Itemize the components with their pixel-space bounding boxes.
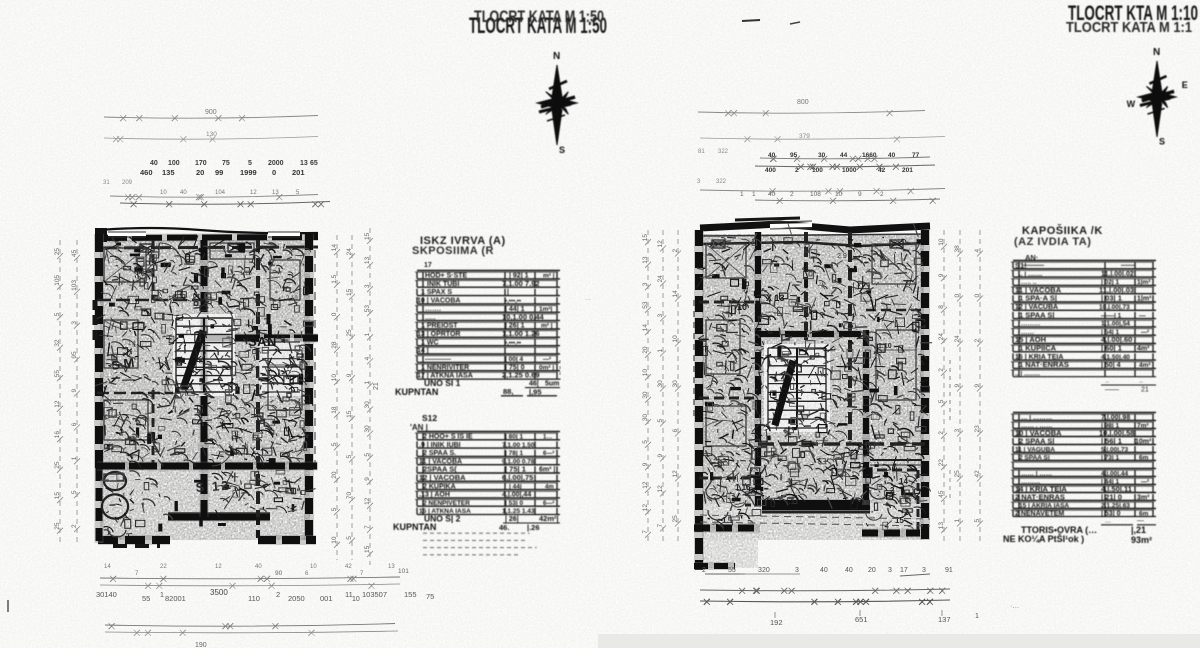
svg-text:2,1.25 0.69: 2,1.25 0.69 xyxy=(502,371,540,380)
svg-text:15: 15 xyxy=(364,232,371,240)
svg-text:10: 10 xyxy=(737,302,747,312)
svg-text:'AN |: 'AN | xyxy=(410,423,428,432)
svg-text:9: 9 xyxy=(364,477,371,481)
svg-text:K: K xyxy=(196,355,202,364)
svg-text:70: 70 xyxy=(346,491,353,499)
svg-text:2: 2 xyxy=(880,191,884,198)
svg-text:95: 95 xyxy=(790,152,798,159)
svg-text:13: 13 xyxy=(364,256,371,264)
svg-text:1660: 1660 xyxy=(862,152,877,159)
svg-text:2: 2 xyxy=(795,167,799,174)
svg-text:25: 25 xyxy=(54,248,61,256)
svg-text:93m²: 93m² xyxy=(1131,535,1152,545)
svg-text:..: .. xyxy=(1105,378,1109,385)
svg-text:3: 3 xyxy=(71,321,78,325)
svg-text:7: 7 xyxy=(364,525,371,529)
svg-text:42: 42 xyxy=(878,167,886,174)
svg-text:30: 30 xyxy=(818,152,826,159)
svg-text:TLOCRT KATA M 1:1: TLOCRT KATA M 1:1 xyxy=(1066,19,1192,36)
svg-text:24: 24 xyxy=(938,333,945,341)
svg-text:40: 40 xyxy=(768,152,776,159)
svg-text:S 12: S 12 xyxy=(195,478,231,495)
svg-text:15: 15 xyxy=(364,545,371,553)
svg-text:155: 155 xyxy=(404,590,417,599)
svg-text:13: 13 xyxy=(642,256,649,264)
svg-text:1: 1 xyxy=(975,613,979,620)
svg-text:5: 5 xyxy=(346,454,353,458)
svg-text:...: ... xyxy=(1105,518,1111,525)
svg-text:2.: 2. xyxy=(904,508,911,517)
svg-text:3: 3 xyxy=(657,314,664,318)
svg-text:55: 55 xyxy=(54,370,61,378)
svg-text:99: 99 xyxy=(215,168,223,177)
svg-text:15: 15 xyxy=(346,288,353,296)
svg-text:12: 12 xyxy=(54,400,61,408)
svg-text:170: 170 xyxy=(195,160,207,167)
svg-text:2: 2 xyxy=(790,191,794,198)
svg-text:13: 13 xyxy=(300,160,308,167)
svg-text:2: 2 xyxy=(938,368,945,372)
svg-text:25: 25 xyxy=(672,515,679,523)
svg-text:42: 42 xyxy=(345,564,352,570)
svg-text:S: S xyxy=(559,145,565,155)
svg-text:——: —— xyxy=(1105,387,1119,394)
svg-text:10: 10 xyxy=(835,191,843,198)
svg-text:5: 5 xyxy=(364,453,371,457)
svg-text:14: 14 xyxy=(672,290,679,298)
svg-text:900: 900 xyxy=(205,109,217,116)
svg-text:9: 9 xyxy=(346,373,353,377)
svg-text:E: E xyxy=(1182,80,1188,90)
svg-text:44: 44 xyxy=(840,152,848,159)
svg-text:22: 22 xyxy=(160,564,167,570)
svg-text:75: 75 xyxy=(426,592,434,601)
svg-text:20: 20 xyxy=(331,471,338,479)
svg-text:201: 201 xyxy=(902,167,913,174)
svg-text:5: 5 xyxy=(331,507,338,511)
svg-text:3500: 3500 xyxy=(210,588,228,597)
svg-text:5: 5 xyxy=(974,519,981,523)
svg-text:1.15: 1.15 xyxy=(240,271,252,277)
svg-text:2: 2 xyxy=(974,339,981,343)
svg-text:5: 5 xyxy=(54,312,61,316)
svg-text:1.1: 1.1 xyxy=(722,516,734,525)
svg-text:12: 12 xyxy=(657,240,664,248)
svg-text:10: 10 xyxy=(672,335,679,343)
svg-text:17: 17 xyxy=(424,262,432,269)
svg-text:TLOCRT KATA M 1:50: TLOCRT KATA M 1:50 xyxy=(474,7,604,26)
svg-text:25: 25 xyxy=(954,470,961,478)
svg-text:|.26: |.26 xyxy=(527,523,540,532)
svg-text:30: 30 xyxy=(364,401,371,409)
svg-text:2.9: 2.9 xyxy=(837,253,847,260)
svg-text:209: 209 xyxy=(122,180,133,186)
svg-text:65: 65 xyxy=(310,160,318,167)
svg-text:(AZ IVDIA TA): (AZ IVDIA TA) xyxy=(1014,236,1091,248)
svg-text:2: 2 xyxy=(226,413,230,420)
svg-text:13: 13 xyxy=(388,564,395,570)
svg-text:2: 2 xyxy=(938,431,945,435)
svg-text:9: 9 xyxy=(938,273,945,277)
svg-text:—: — xyxy=(1137,518,1144,525)
svg-text:23: 23 xyxy=(974,425,981,433)
svg-text:0: 0 xyxy=(954,294,961,298)
svg-text:12: 12 xyxy=(250,190,257,196)
svg-text:5: 5 xyxy=(71,490,78,494)
svg-text:103: 103 xyxy=(71,280,78,291)
svg-text:1.10: 1.10 xyxy=(878,343,892,350)
svg-text:1: 1 xyxy=(954,519,961,523)
svg-text:9: 9 xyxy=(642,462,649,466)
svg-text:18: 18 xyxy=(331,406,338,414)
svg-text:137: 137 xyxy=(938,615,951,624)
svg-text:0: 0 xyxy=(331,312,338,316)
svg-text:5: 5 xyxy=(642,440,649,444)
svg-text:N: N xyxy=(553,51,560,62)
svg-text:190: 190 xyxy=(195,642,207,648)
svg-text:..: .. xyxy=(1139,378,1143,385)
svg-text:5: 5 xyxy=(657,419,664,423)
svg-text:6: 6 xyxy=(71,422,78,426)
svg-text:5: 5 xyxy=(331,442,338,446)
svg-text:800: 800 xyxy=(797,99,809,106)
svg-text:15: 15 xyxy=(54,492,61,500)
svg-text:28: 28 xyxy=(331,341,338,349)
svg-text:2000: 2000 xyxy=(268,160,284,167)
svg-text:001: 001 xyxy=(320,594,333,603)
svg-text:100: 100 xyxy=(168,160,180,167)
svg-text:4: 4 xyxy=(974,249,981,253)
svg-text:12: 12 xyxy=(642,481,649,489)
svg-text:10: 10 xyxy=(331,374,338,382)
svg-text:40: 40 xyxy=(768,191,776,198)
svg-text:17: 17 xyxy=(900,567,908,574)
svg-text:6: 6 xyxy=(672,429,679,433)
svg-text:5: 5 xyxy=(248,160,252,167)
svg-text:53: 53 xyxy=(364,305,371,313)
svg-text:31: 31 xyxy=(103,180,110,186)
svg-text:1: 1 xyxy=(160,592,164,599)
svg-text:25: 25 xyxy=(346,329,353,337)
svg-text:14: 14 xyxy=(331,244,338,252)
svg-text:9: 9 xyxy=(858,191,862,198)
svg-text:9: 9 xyxy=(974,384,981,388)
svg-text:15: 15 xyxy=(346,410,353,418)
svg-text:90: 90 xyxy=(275,570,283,577)
svg-text:14: 14 xyxy=(104,564,111,570)
svg-text:42: 42 xyxy=(974,470,981,478)
svg-text:9: 9 xyxy=(954,384,961,388)
svg-text:15: 15 xyxy=(642,234,649,242)
svg-text:103507: 103507 xyxy=(362,590,387,599)
svg-text:2.19: 2.19 xyxy=(286,296,298,302)
svg-text:95: 95 xyxy=(71,351,78,359)
svg-text:1: 1 xyxy=(364,332,371,336)
svg-text:42m²|: 42m²| xyxy=(539,514,559,523)
svg-text:12: 12 xyxy=(642,504,649,512)
svg-text:10: 10 xyxy=(160,190,167,196)
svg-text:21: 21 xyxy=(373,382,380,390)
svg-text:S M: S M xyxy=(110,355,135,373)
svg-text:3: 3 xyxy=(888,567,892,574)
svg-text:322: 322 xyxy=(716,179,727,185)
svg-text:379: 379 xyxy=(799,133,810,140)
svg-text:46.: 46. xyxy=(499,523,509,532)
svg-text:55: 55 xyxy=(142,594,150,603)
svg-text:13: 13 xyxy=(938,522,945,530)
svg-text:2: 2 xyxy=(890,486,895,495)
svg-text:10: 10 xyxy=(642,369,649,377)
svg-text:192: 192 xyxy=(770,618,783,627)
svg-text:82001: 82001 xyxy=(165,594,186,603)
svg-text:1: 1 xyxy=(364,380,371,384)
svg-text:30: 30 xyxy=(642,391,649,399)
svg-text:1.1: 1.1 xyxy=(128,341,137,347)
svg-text:| 26|: | 26| xyxy=(505,516,519,523)
svg-text:25: 25 xyxy=(54,522,61,530)
svg-text:22: 22 xyxy=(938,459,945,467)
svg-text:110: 110 xyxy=(248,594,260,603)
svg-text:5um: 5um xyxy=(545,381,559,388)
svg-text:12: 12 xyxy=(364,497,371,505)
svg-text:20: 20 xyxy=(868,567,876,574)
svg-text:8: 8 xyxy=(938,305,945,309)
svg-text:…: … xyxy=(585,296,591,302)
svg-text:3: 3 xyxy=(642,282,649,286)
svg-text:3: 3 xyxy=(364,284,371,288)
svg-text:20: 20 xyxy=(196,168,204,177)
svg-text:5: 5 xyxy=(346,536,353,540)
svg-text:40: 40 xyxy=(888,152,896,159)
svg-text:W: W xyxy=(1127,99,1136,109)
svg-text:101: 101 xyxy=(398,568,409,575)
svg-text:S: S xyxy=(1159,137,1165,147)
svg-text:3: 3 xyxy=(922,567,926,574)
svg-text:1.4: 1.4 xyxy=(294,448,303,454)
svg-text:|,95: |,95 xyxy=(529,387,542,396)
svg-text:10: 10 xyxy=(331,536,338,544)
svg-text:·…: ·… xyxy=(1010,603,1019,610)
svg-text:40: 40 xyxy=(255,564,262,570)
svg-text:25: 25 xyxy=(54,461,61,469)
svg-text:9: 9 xyxy=(657,454,664,458)
svg-text:45: 45 xyxy=(938,490,945,498)
svg-text:130: 130 xyxy=(206,131,217,138)
svg-text:14: 14 xyxy=(642,324,649,332)
svg-text:KUPNTAN: KUPNTAN xyxy=(393,522,436,532)
svg-text:40: 40 xyxy=(180,190,187,196)
svg-text:75: 75 xyxy=(222,160,230,167)
svg-text:SAN: SAN xyxy=(248,334,277,349)
svg-text:7: 7 xyxy=(657,524,664,528)
svg-text:10: 10 xyxy=(310,564,317,570)
svg-text:1: 1 xyxy=(71,456,78,460)
svg-text:14: 14 xyxy=(899,477,908,486)
svg-text:651: 651 xyxy=(855,615,868,624)
svg-text:|,21: |,21 xyxy=(1131,525,1146,535)
svg-text:12: 12 xyxy=(672,470,679,478)
svg-text:12: 12 xyxy=(215,564,222,570)
svg-text:30: 30 xyxy=(657,380,664,388)
svg-text:1: 1 xyxy=(752,191,756,198)
svg-text:12: 12 xyxy=(657,485,664,493)
svg-text:24: 24 xyxy=(657,275,664,283)
svg-text:104: 104 xyxy=(215,190,226,196)
svg-text:13: 13 xyxy=(272,190,279,196)
svg-text:1: 1 xyxy=(740,191,744,198)
svg-text:7: 7 xyxy=(642,530,649,534)
svg-text:16: 16 xyxy=(54,431,61,439)
svg-text:1000: 1000 xyxy=(842,167,857,174)
svg-text:2: 2 xyxy=(276,590,280,599)
svg-text:30140: 30140 xyxy=(96,590,117,599)
svg-text:108: 108 xyxy=(810,191,821,198)
svg-text:10: 10 xyxy=(938,238,945,246)
svg-text:9: 9 xyxy=(71,389,78,393)
svg-text:135: 135 xyxy=(162,168,175,177)
svg-text:3: 3 xyxy=(954,429,961,433)
svg-text:38: 38 xyxy=(954,245,961,253)
svg-text:24: 24 xyxy=(346,248,353,256)
svg-text:30: 30 xyxy=(642,414,649,422)
svg-text:20: 20 xyxy=(642,346,649,354)
svg-text:40: 40 xyxy=(845,567,853,574)
svg-text:S12: S12 xyxy=(422,413,437,423)
svg-text:40: 40 xyxy=(150,160,158,167)
svg-text:53: 53 xyxy=(642,301,649,309)
svg-text:88,: 88, xyxy=(503,387,513,396)
svg-text:16: 16 xyxy=(168,295,176,302)
svg-text:105: 105 xyxy=(54,275,61,286)
svg-text:30: 30 xyxy=(672,380,679,388)
svg-text:0: 0 xyxy=(974,294,981,298)
svg-text:2050: 2050 xyxy=(288,594,305,603)
svg-text:400: 400 xyxy=(765,167,776,174)
svg-text:X 13: X 13 xyxy=(766,293,785,303)
svg-text:32: 32 xyxy=(54,339,61,347)
svg-text:5: 5 xyxy=(938,399,945,403)
svg-text:2: 2 xyxy=(702,567,706,574)
svg-text:N: N xyxy=(1153,47,1160,58)
svg-text:91: 91 xyxy=(177,356,184,364)
svg-text:SKPOSIIMA (R: SKPOSIIMA (R xyxy=(412,245,494,257)
svg-text:1.5: 1.5 xyxy=(331,274,338,283)
svg-text:NE KO¼A PtŠI¹ok ): NE KO¼A PtŠI¹ok ) xyxy=(1003,533,1084,544)
svg-text:1.16: 1.16 xyxy=(735,483,751,492)
svg-text:91: 91 xyxy=(945,567,953,574)
svg-text:81: 81 xyxy=(698,149,705,155)
svg-text:15: 15 xyxy=(895,516,904,525)
svg-text:100: 100 xyxy=(812,167,823,174)
svg-text:55: 55 xyxy=(728,567,736,574)
svg-text:45: 45 xyxy=(71,249,78,257)
svg-text:3: 3 xyxy=(795,567,799,574)
svg-text:30: 30 xyxy=(364,425,371,433)
svg-text:21: 21 xyxy=(1141,387,1149,394)
svg-text:460: 460 xyxy=(140,168,153,177)
svg-text:77: 77 xyxy=(912,152,920,159)
svg-text:1: 1 xyxy=(657,349,664,353)
svg-text:4: 4 xyxy=(364,356,371,360)
svg-text:0: 0 xyxy=(272,168,276,177)
svg-text:322: 322 xyxy=(718,149,729,155)
svg-text:1999: 1999 xyxy=(240,168,257,177)
svg-text:3: 3 xyxy=(281,335,286,344)
svg-text:2: 2 xyxy=(672,249,679,253)
svg-text:KUPNTAN: KUPNTAN xyxy=(395,387,438,397)
svg-text:10: 10 xyxy=(352,596,360,603)
svg-text:201: 201 xyxy=(292,168,305,177)
svg-text:2: 2 xyxy=(71,524,78,528)
svg-text:20: 20 xyxy=(762,567,770,574)
svg-text:24: 24 xyxy=(954,335,961,343)
svg-text:40: 40 xyxy=(820,567,828,574)
